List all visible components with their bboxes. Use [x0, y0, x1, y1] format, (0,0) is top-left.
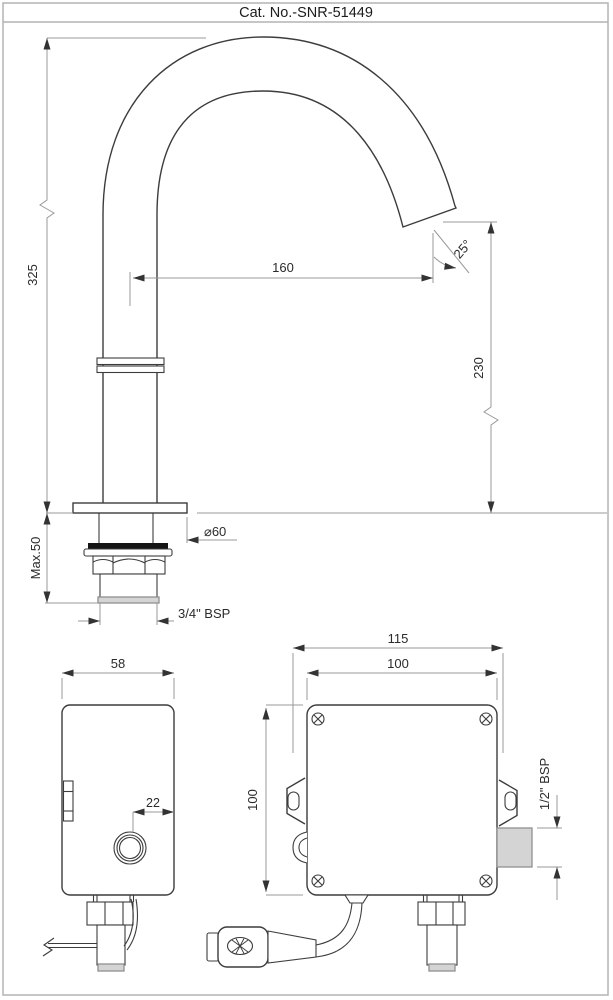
right-mounting-ear — [499, 780, 517, 826]
outlet-pipe — [497, 828, 532, 867]
mounting-nut — [93, 556, 165, 574]
screw-icon — [480, 875, 492, 887]
screw-icon — [312, 713, 324, 725]
sensor-cable — [316, 895, 368, 957]
dim-outlet-height-label: 230 — [471, 357, 486, 379]
dim-outlet-thread-label: 1/2" BSP — [537, 758, 552, 810]
spec-sheet-page: Cat. No.-SNR-51449 325 160 — [0, 0, 613, 1000]
control-box-front-view — [207, 705, 532, 971]
dim-sensor-offset-label: 22 — [146, 796, 160, 810]
screw-icon — [480, 713, 492, 725]
dim-box-depth-label: 58 — [111, 656, 125, 671]
inlet-pipe — [100, 574, 157, 598]
screw-icon — [312, 875, 324, 887]
dim-box-height-label: 100 — [245, 789, 260, 811]
spout-collar-ring — [97, 366, 164, 373]
left-mounting-ear — [287, 778, 305, 824]
control-box-side-view — [43, 705, 174, 971]
dim-spout-angle-label: 25° — [450, 237, 474, 262]
inlet-pipe-end — [98, 597, 159, 603]
front-box-body — [307, 705, 497, 895]
dim-overall-width-label: 115 — [388, 631, 409, 646]
catalog-number-title: Cat. No.-SNR-51449 — [239, 5, 373, 21]
dim-box-width-label: 100 — [387, 656, 409, 671]
side-box-outlet — [87, 895, 134, 971]
technical-drawing: Cat. No.-SNR-51449 325 160 — [0, 0, 613, 1000]
faucet-spout-drawing — [73, 37, 456, 603]
base-flange — [73, 503, 187, 513]
washer — [84, 549, 172, 556]
sensor-plug — [207, 927, 316, 967]
rubber-gasket — [88, 543, 168, 549]
sensor-connector-port — [114, 832, 146, 864]
dim-deck-max-label: Max.50 — [28, 537, 43, 580]
dim-reach-label: 160 — [272, 260, 294, 275]
spout-collar-ring — [97, 358, 164, 365]
dim-total-height-label: 325 — [25, 264, 40, 286]
front-box-outlet — [418, 895, 465, 971]
cable-gland-bump — [293, 832, 307, 863]
side-mounting-tab — [64, 781, 74, 821]
dim-inlet-thread-label: 3/4" BSP — [178, 606, 230, 621]
dim-flange-diameter-label: ⌀60 — [204, 524, 226, 539]
